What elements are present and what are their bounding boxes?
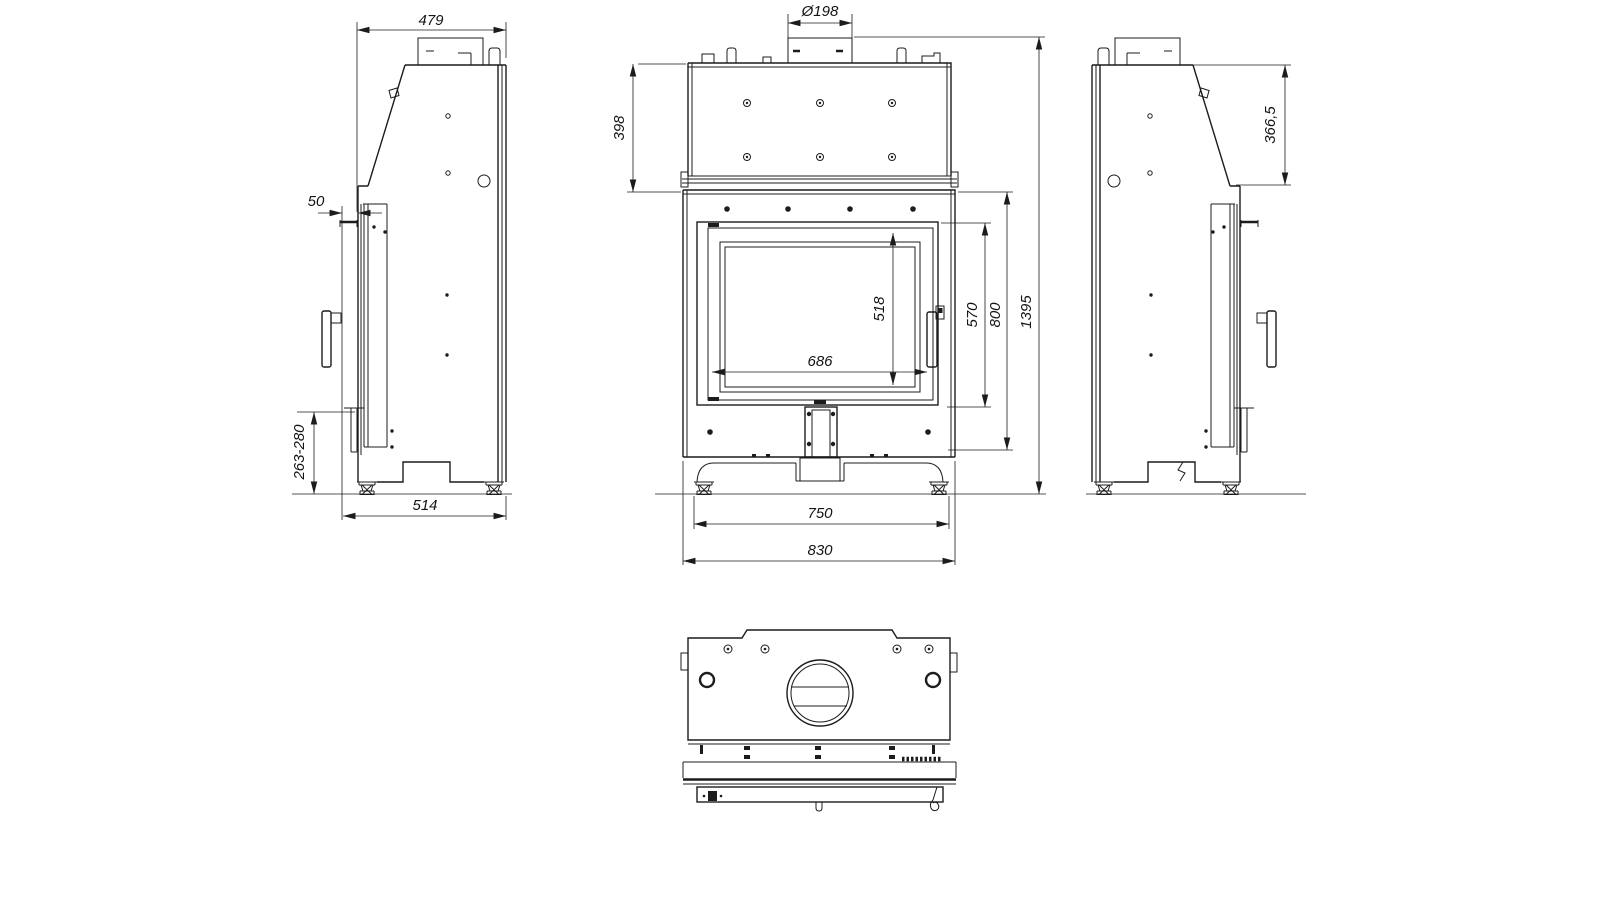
dim-518: 518 <box>871 233 900 387</box>
base-profile <box>697 463 943 482</box>
dim-50-label: 50 <box>308 193 325 210</box>
door-leaf <box>708 228 933 400</box>
dim-1395: 1395 <box>854 37 1045 494</box>
dim-514: 514 <box>343 496 506 520</box>
heat-exchanger-box <box>688 63 951 176</box>
center-tab <box>816 802 822 811</box>
foot-right <box>929 482 949 495</box>
dim-750: 750 <box>694 496 949 529</box>
door-side-profile <box>363 204 387 447</box>
dim-479-label: 479 <box>418 12 444 29</box>
technical-drawing-canvas: 479 50 263-280 514 Ø198 <box>0 0 1600 900</box>
top-view-outline <box>688 630 950 740</box>
dim-518-label: 518 <box>871 296 888 322</box>
top-bolt-holes <box>724 645 933 653</box>
tab-right <box>950 653 957 672</box>
dim-800-label: 800 <box>987 302 1004 328</box>
exchanger-holes <box>744 100 896 161</box>
dim-830-label: 830 <box>807 542 833 559</box>
dim-263-280: 263-280 <box>291 412 355 494</box>
dimensions: 479 50 263-280 514 Ø198 <box>291 3 1291 565</box>
front-trim-strip <box>697 787 943 802</box>
front-view-geometry <box>655 38 1046 495</box>
slope-bracket <box>389 88 399 98</box>
foot-left <box>694 482 714 495</box>
dim-50: 50 <box>308 193 382 520</box>
base-weld-mark <box>1178 462 1185 481</box>
hinge-marks <box>708 223 719 401</box>
front-body-outline <box>683 190 955 457</box>
door-handle-side <box>322 311 331 367</box>
dim-263-280-label: 263-280 <box>291 424 308 481</box>
dim-514-label: 514 <box>412 497 437 514</box>
dim-366-5: 366,5 <box>1193 65 1291 185</box>
dim-flue-label: Ø198 <box>801 3 839 20</box>
top-fittings <box>702 53 940 63</box>
dim-366-5-label: 366,5 <box>1262 106 1279 144</box>
dim-686: 686 <box>712 353 927 372</box>
drawing-sheet: 479 50 263-280 514 Ø198 <box>0 0 1600 900</box>
handle-mount <box>331 313 341 323</box>
hook-wire <box>930 787 938 811</box>
base-notch <box>377 462 484 482</box>
door-handle <box>927 312 937 367</box>
dim-686-label: 686 <box>807 353 833 370</box>
dim-398: 398 <box>611 64 686 192</box>
top-view-geometry <box>681 630 957 811</box>
dim-1395-label: 1395 <box>1018 295 1035 329</box>
foot-front <box>357 482 377 495</box>
dim-570: 570 <box>941 223 991 407</box>
dim-479: 479 <box>357 12 506 212</box>
side-body-outline <box>405 65 506 482</box>
top-stubs <box>727 48 906 63</box>
top-bracket-box <box>418 38 483 65</box>
left-side-view-geometry <box>292 38 512 495</box>
hood-slope <box>358 65 405 482</box>
flue-outlet-circle <box>787 660 853 726</box>
latch-block <box>708 791 717 801</box>
base-pedestal <box>800 458 840 481</box>
dim-398-label: 398 <box>611 115 628 141</box>
damper-plate <box>791 687 849 706</box>
front-frame-band <box>683 762 956 778</box>
side-connection-hole <box>478 175 490 187</box>
door-frame <box>697 222 938 405</box>
dim-750-label: 750 <box>807 505 833 522</box>
door-latch <box>814 400 826 404</box>
top-stub-fitting <box>489 48 500 65</box>
foot-rear <box>484 482 504 495</box>
tab-left <box>681 653 688 670</box>
water-connection-left <box>700 673 714 687</box>
dim-570-label: 570 <box>964 302 981 328</box>
water-connection-right <box>926 673 940 687</box>
